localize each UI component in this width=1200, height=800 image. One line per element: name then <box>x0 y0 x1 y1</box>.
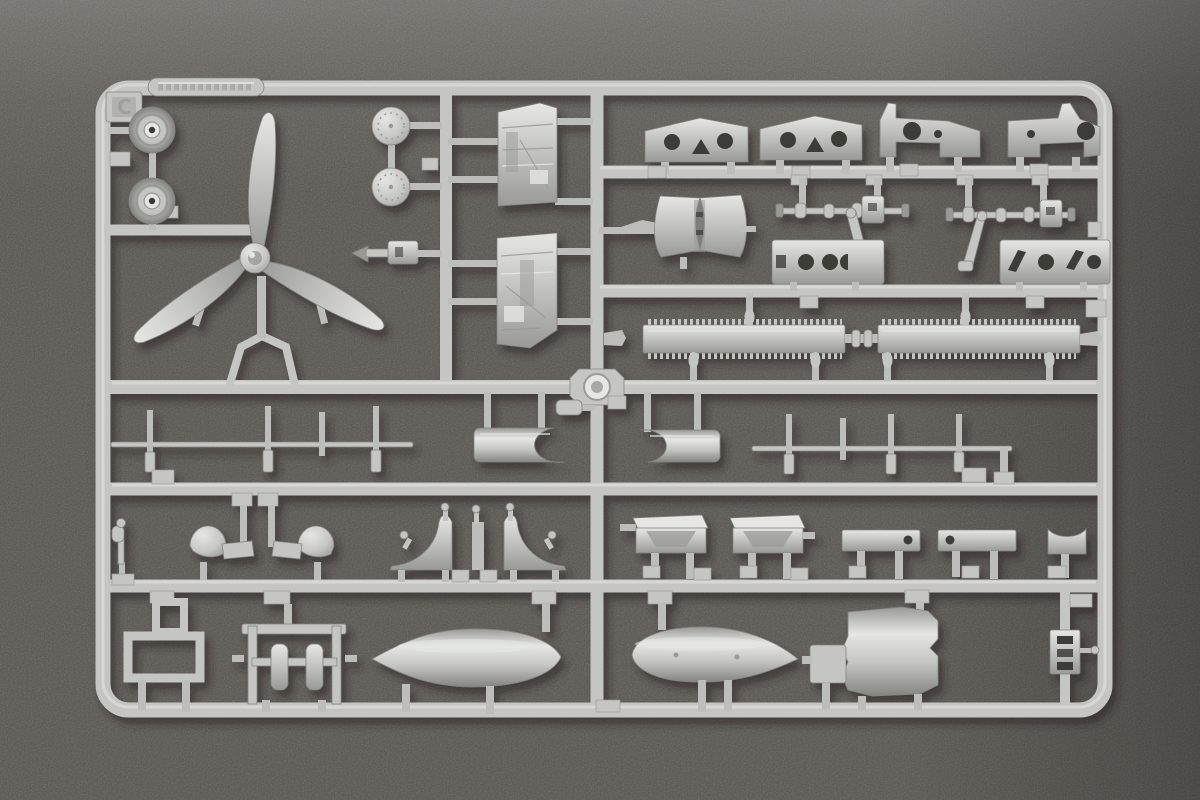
rack-bomb-2 <box>306 644 323 690</box>
cockpit-sidewall-1 <box>498 103 557 206</box>
main-wheel-2 <box>129 178 175 224</box>
cockpit-sidewall-2 <box>497 233 557 348</box>
hub-disc-2 <box>372 168 410 206</box>
bracket-center-post <box>472 522 484 570</box>
bulkhead-side-tab <box>810 645 846 683</box>
rail-tag <box>1086 300 1106 317</box>
hub-disc-1 <box>372 107 410 145</box>
embossed-brand-plate <box>148 78 264 96</box>
sprue-letter: C <box>117 95 132 119</box>
main-wheel-1 <box>129 107 175 153</box>
rail-tag <box>1088 222 1101 237</box>
rail-tag <box>1070 594 1092 607</box>
rack-bomb-1 <box>271 644 288 690</box>
sprue-photo: C <box>0 0 1200 800</box>
